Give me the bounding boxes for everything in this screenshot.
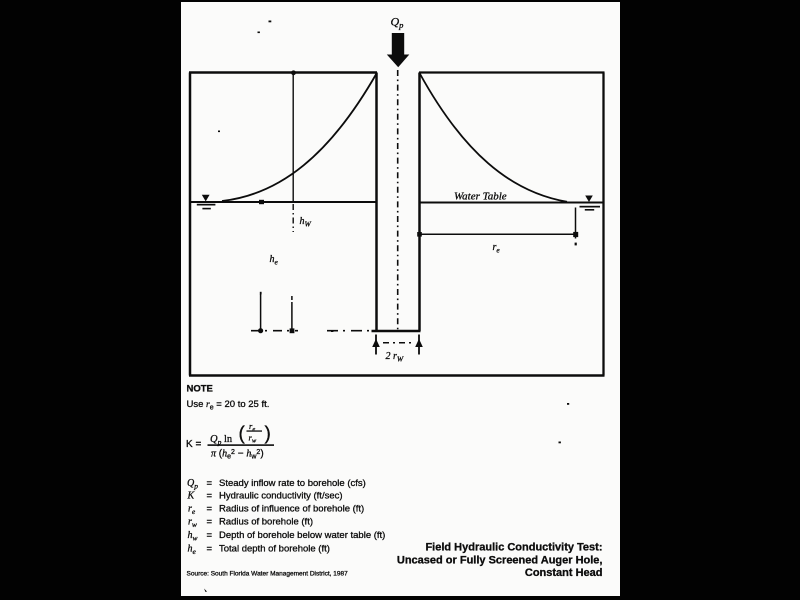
svg-text:=: = <box>207 517 213 528</box>
svg-text:Source: South Florida Water Ma: Source: South Florida Water Management D… <box>187 571 349 578</box>
svg-text:=: = <box>207 504 213 515</box>
svg-text:Radius of borehole (ft): Radius of borehole (ft) <box>219 517 313 528</box>
svg-text:π (he2 − hw2): π (he2 − hw2) <box>211 449 264 461</box>
svg-text:Uncased or Fully Screened Auge: Uncased or Fully Screened Auger Hole, <box>397 554 603 566</box>
svg-text:(: ( <box>239 424 246 445</box>
svg-text:=: = <box>207 530 213 541</box>
svg-text:Water Table: Water Table <box>454 191 507 203</box>
svg-text:Field Hydraulic Conductivity T: Field Hydraulic Conductivity Test: <box>425 542 602 554</box>
svg-text:=: = <box>207 478 213 489</box>
svg-text:Use re = 20 to 25 ft.: Use re = 20 to 25 ft. <box>187 399 270 412</box>
svg-text:Radius of influence of borehol: Radius of influence of borehole (ft) <box>219 504 364 515</box>
svg-text:Depth of borehole below water: Depth of borehole below water table (ft) <box>219 530 385 541</box>
svg-text:Steady inflow rate to borehole: Steady inflow rate to borehole (cfs) <box>219 478 366 489</box>
svg-text:NOTE: NOTE <box>187 384 213 395</box>
svg-text:=: = <box>207 491 213 502</box>
svg-text:Constant Head: Constant Head <box>525 567 603 579</box>
svg-text:Total depth of borehole (ft): Total depth of borehole (ft) <box>219 544 330 555</box>
svg-text:=: = <box>207 544 213 555</box>
svg-text:K =: K = <box>186 439 201 450</box>
svg-text:Hydraulic conductivity (ft/sec: Hydraulic conductivity (ft/sec) <box>219 491 343 502</box>
svg-text:K: K <box>187 491 196 502</box>
svg-text:): ) <box>265 424 271 445</box>
